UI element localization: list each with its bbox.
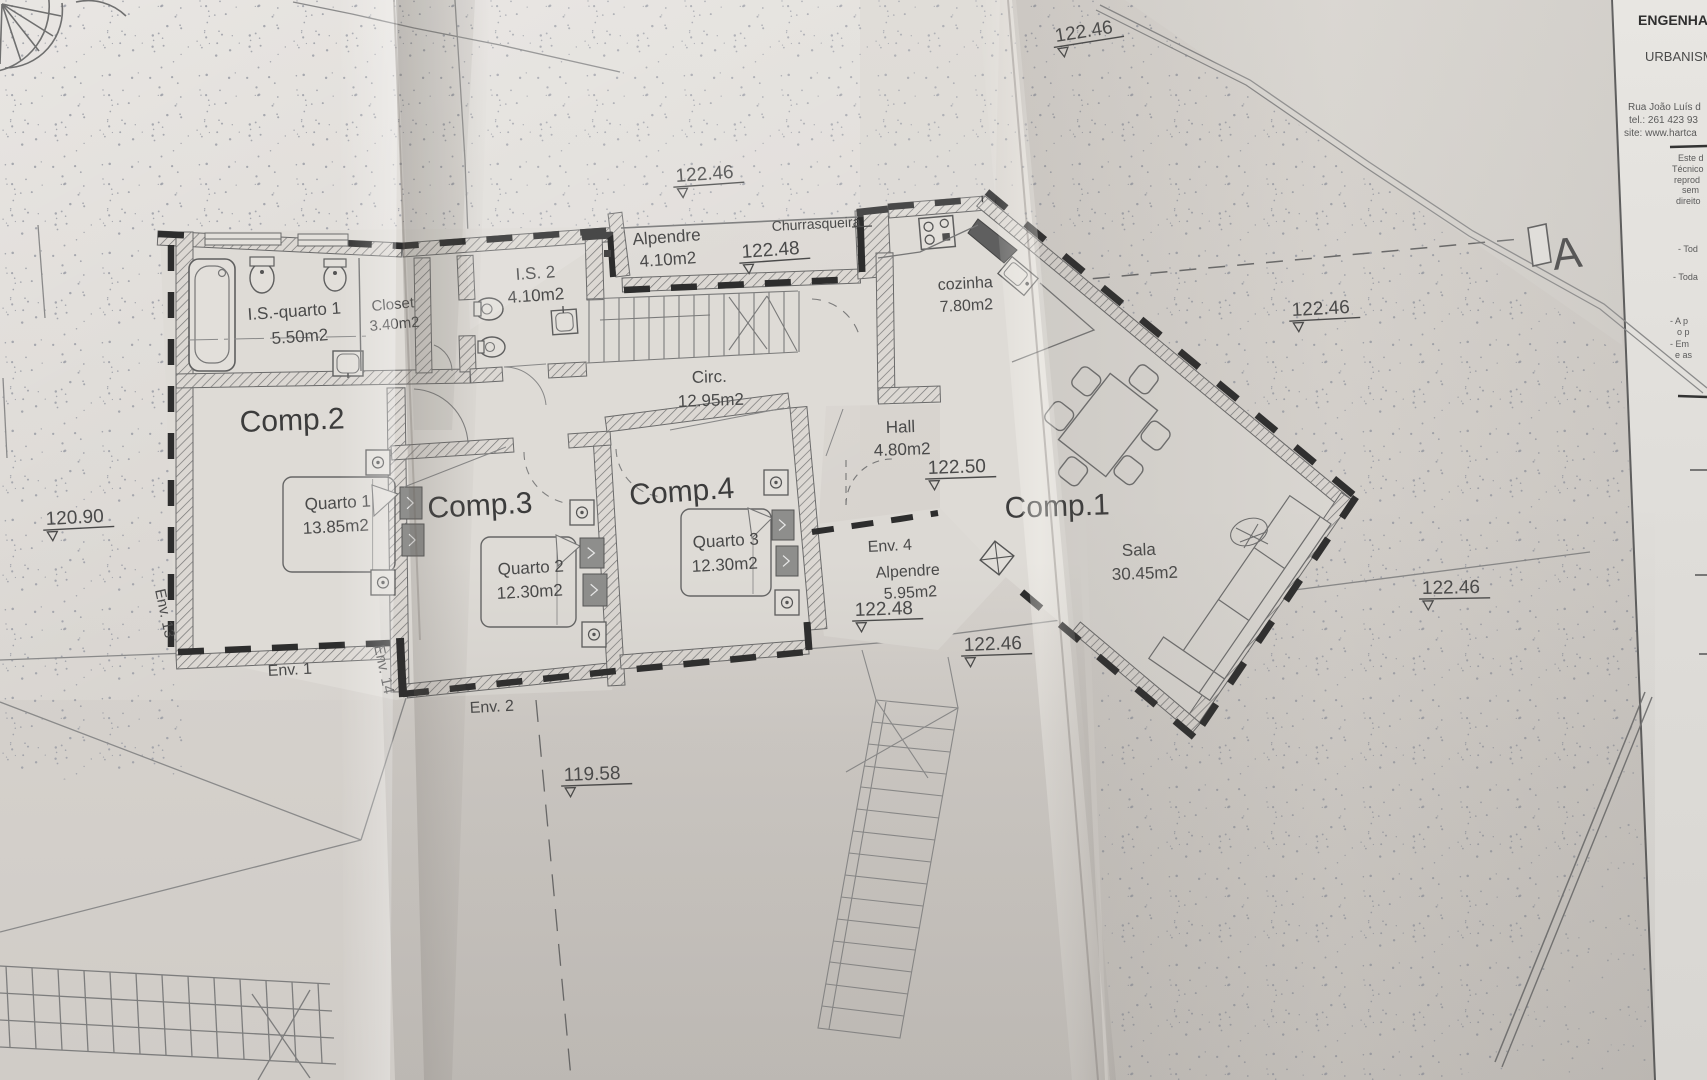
svg-text:tel.: 261 423 93: tel.: 261 423 93	[1629, 115, 1698, 126]
svg-text:12.95m2: 12.95m2	[677, 390, 744, 411]
svg-text:Circ.: Circ.	[691, 367, 727, 387]
svg-text:Este d: Este d	[1678, 153, 1704, 163]
svg-text:direito: direito	[1676, 196, 1701, 206]
svg-text:- A p: - A p	[1670, 316, 1688, 326]
svg-text:7.80m2: 7.80m2	[939, 296, 993, 316]
svg-text:URBANISM: URBANISM	[1645, 49, 1707, 64]
svg-text:Env. 4: Env. 4	[867, 537, 912, 556]
svg-text:Rua João Luís d: Rua João Luís d	[1628, 102, 1701, 113]
svg-text:Hall: Hall	[885, 417, 915, 437]
svg-text:122.50: 122.50	[927, 456, 986, 479]
svg-text:reprod: reprod	[1674, 175, 1700, 185]
svg-text:Quarto 3: Quarto 3	[692, 530, 759, 552]
svg-text:sem: sem	[1682, 185, 1699, 195]
svg-text:- Em: - Em	[1670, 339, 1689, 349]
svg-text:4.80m2: 4.80m2	[873, 439, 930, 460]
svg-text:ENGENHARIA: ENGENHARIA	[1638, 12, 1707, 28]
svg-text:cozinha: cozinha	[937, 274, 993, 294]
svg-text:- Toda: - Toda	[1673, 272, 1698, 282]
svg-text:site: www.hartca: site: www.hartca	[1624, 128, 1697, 139]
svg-text:120.90: 120.90	[45, 506, 104, 530]
svg-text:o p: o p	[1677, 327, 1690, 337]
svg-text:5.50m2: 5.50m2	[271, 325, 329, 348]
svg-text:4.10m2: 4.10m2	[639, 248, 697, 271]
svg-text:Comp.2: Comp.2	[239, 402, 345, 439]
svg-text:Técnico: Técnico	[1672, 164, 1704, 174]
svg-text:Env. 1: Env. 1	[267, 661, 312, 680]
svg-text:- Tod: - Tod	[1678, 244, 1698, 254]
svg-text:e as: e as	[1675, 350, 1693, 360]
